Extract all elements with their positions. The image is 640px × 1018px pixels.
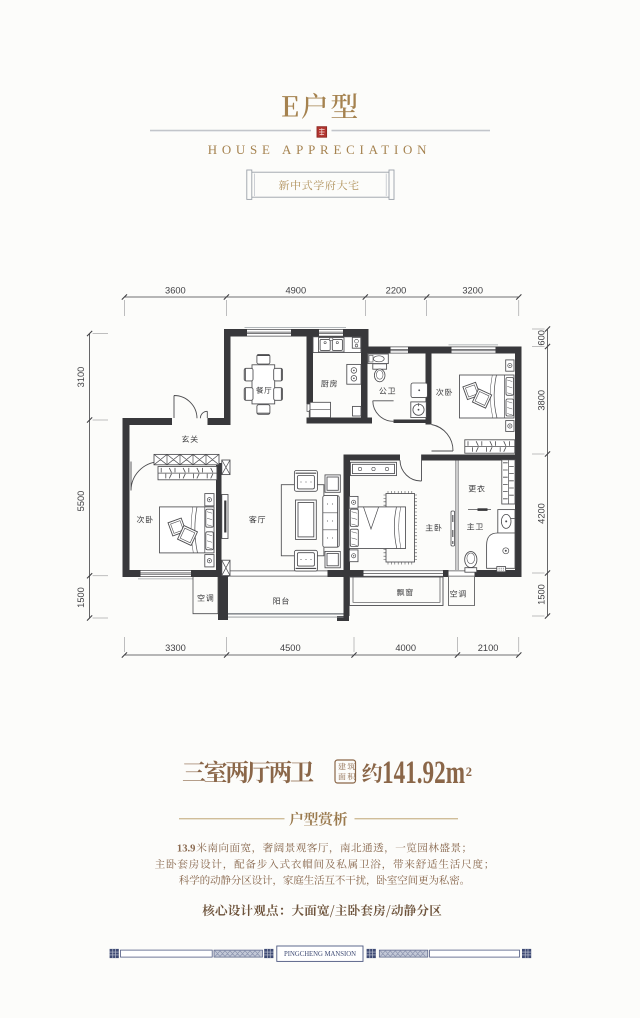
svg-text:3200: 3200 xyxy=(462,285,483,295)
svg-text:3300: 3300 xyxy=(165,643,186,653)
svg-text:1500: 1500 xyxy=(76,587,86,608)
svg-text:2100: 2100 xyxy=(478,643,499,653)
svg-text:3100: 3100 xyxy=(76,367,86,388)
svg-text:600: 600 xyxy=(536,330,546,346)
svg-text:141.92m: 141.92m xyxy=(382,755,465,791)
svg-text:4500: 4500 xyxy=(280,643,301,653)
svg-text:3800: 3800 xyxy=(536,390,546,411)
svg-text:4900: 4900 xyxy=(285,285,306,295)
svg-text:2200: 2200 xyxy=(386,285,407,295)
svg-text:4200: 4200 xyxy=(536,503,546,524)
svg-text:2: 2 xyxy=(466,765,472,779)
svg-text:HOUSE APPRECIATION: HOUSE APPRECIATION xyxy=(208,143,432,157)
svg-text:13.9: 13.9 xyxy=(177,844,196,855)
svg-text:1500: 1500 xyxy=(536,584,546,605)
svg-text:PINGCHENG MANSION: PINGCHENG MANSION xyxy=(284,951,356,958)
svg-text:5500: 5500 xyxy=(76,491,86,512)
svg-text:3600: 3600 xyxy=(165,285,186,295)
svg-text:4000: 4000 xyxy=(395,643,416,653)
